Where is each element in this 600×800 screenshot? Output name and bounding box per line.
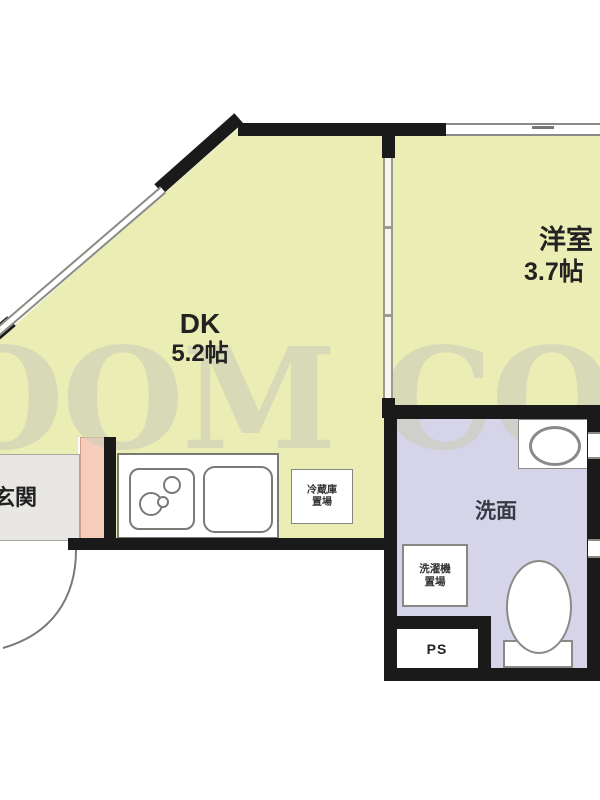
kitchen-counter bbox=[117, 453, 279, 539]
room-western-name: 洋室 bbox=[539, 224, 593, 257]
room-dk-name: DK bbox=[148, 308, 252, 340]
window-right-upper bbox=[588, 432, 600, 459]
window-mullion-mark bbox=[532, 126, 554, 129]
fridge-space-box: 冷蔵庫 置場 bbox=[291, 469, 353, 524]
window-top bbox=[446, 123, 600, 136]
wall-ps-horizontal bbox=[395, 616, 491, 629]
washer-space-box: 洗濯機 置場 bbox=[402, 544, 468, 607]
room-label-dk: DK 5.2帖 bbox=[148, 308, 252, 368]
floor-plan: OOM COR 冷蔵庫 置場 洗濯機 置場 PS bbox=[0, 0, 600, 800]
toilet-icon bbox=[506, 560, 572, 654]
burner-icon bbox=[163, 476, 181, 494]
wall-ps-vertical bbox=[478, 616, 491, 681]
fridge-space-label-line2: 置場 bbox=[312, 497, 332, 509]
wall-partition-stub-top bbox=[382, 133, 395, 158]
washer-space-label-line1: 洗濯機 bbox=[419, 563, 451, 576]
room-dk-size: 5.2帖 bbox=[148, 340, 252, 368]
wall-washroom-top bbox=[384, 405, 600, 419]
window-right-lower bbox=[588, 539, 600, 558]
washer-space-label-line2: 置場 bbox=[425, 576, 446, 589]
wall-kitchen-bottom bbox=[68, 538, 397, 550]
wall-bottom bbox=[384, 668, 600, 681]
room-label-washroom: 洗面 bbox=[475, 495, 517, 525]
pipe-space-box: PS bbox=[396, 629, 478, 668]
watermark: OOM COR bbox=[0, 330, 600, 470]
fridge-space-label-line1: 冷蔵庫 bbox=[307, 485, 337, 497]
partition-segment-mark bbox=[385, 314, 391, 317]
room-label-entrance: 玄関 bbox=[0, 480, 37, 512]
wash-basin-box bbox=[518, 419, 588, 469]
entrance-door-swing-arc bbox=[0, 546, 95, 661]
pipe-space-label: PS bbox=[427, 641, 448, 657]
kitchen-sink-icon bbox=[203, 466, 273, 533]
stove-burners-icon bbox=[129, 468, 195, 530]
wash-basin-icon bbox=[529, 426, 581, 466]
sliding-partition bbox=[383, 156, 393, 400]
wall-kitchen bbox=[104, 437, 116, 547]
room-western-size: 3.7帖 bbox=[524, 257, 593, 287]
burner-icon bbox=[157, 496, 169, 508]
room-label-western: 洋室 3.7帖 bbox=[524, 224, 593, 287]
wall-top bbox=[238, 123, 448, 136]
partition-segment-mark bbox=[385, 226, 391, 229]
